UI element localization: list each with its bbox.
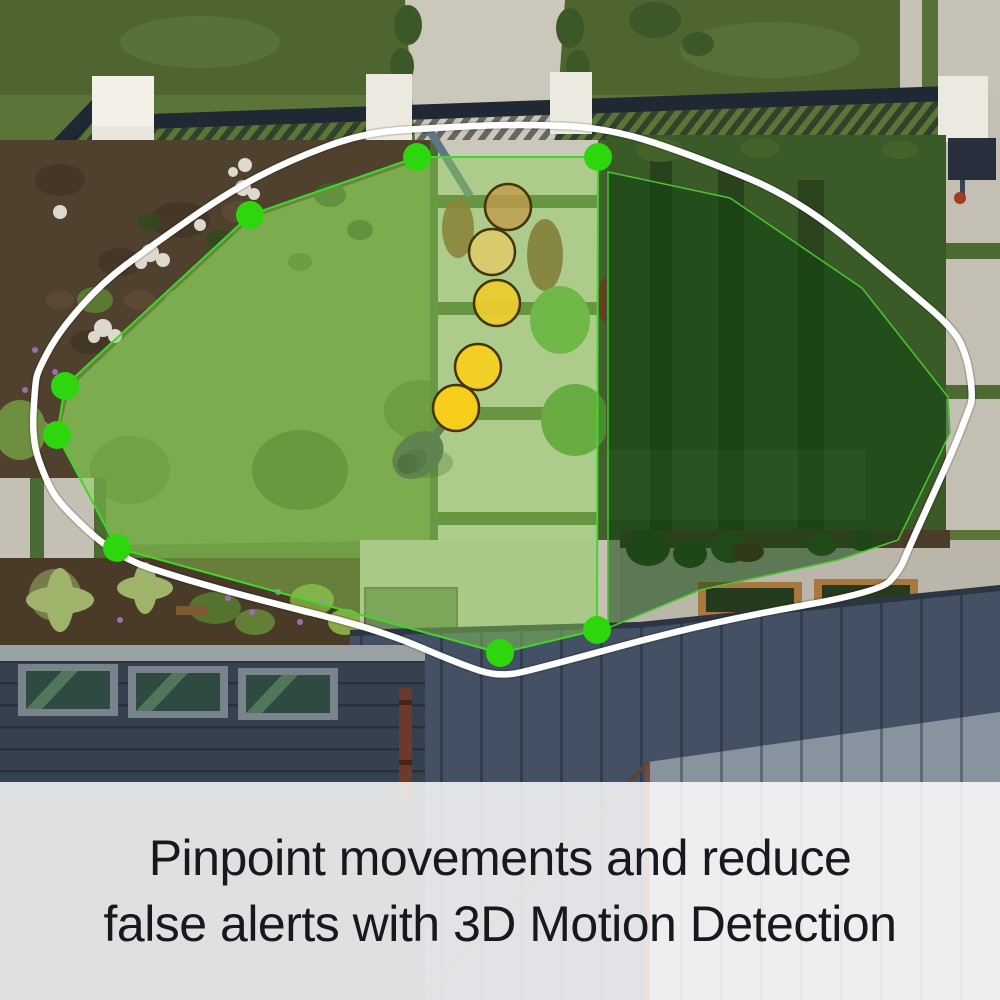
product-image: Pinpoint movements and reduce false aler… xyxy=(0,0,1000,1000)
caption-line-1: Pinpoint movements and reduce xyxy=(149,825,852,891)
motion-trail-point xyxy=(433,385,479,431)
fence-post xyxy=(938,76,988,142)
zone-vertex-handle[interactable] xyxy=(486,639,514,667)
pipe-band xyxy=(399,700,412,705)
motion-trail-point xyxy=(485,184,531,230)
deck-strip xyxy=(0,645,425,661)
skylight xyxy=(128,666,228,718)
pipe-band xyxy=(399,760,412,765)
driftwood xyxy=(176,606,208,615)
zone-vertex-handle[interactable] xyxy=(51,372,79,400)
sidewalk-grass-strip xyxy=(922,0,938,95)
zone-vertex-handle[interactable] xyxy=(403,143,431,171)
zone-vertex-handle[interactable] xyxy=(584,143,612,171)
zone-vertex-handle[interactable] xyxy=(236,201,264,229)
skylight xyxy=(18,664,118,716)
paver-joint xyxy=(30,478,44,570)
caption-line-2: false alerts with 3D Motion Detection xyxy=(104,891,897,957)
grass-highlight xyxy=(120,16,280,68)
utility-box xyxy=(948,138,996,180)
zone-vertex-handle[interactable] xyxy=(583,616,611,644)
caption-band: Pinpoint movements and reduce false aler… xyxy=(0,782,1000,1000)
sidewalk-joint xyxy=(940,243,1000,259)
skylight xyxy=(238,668,338,720)
fence-post-top xyxy=(92,76,154,126)
moss-clump xyxy=(235,609,275,635)
motion-trail-point xyxy=(455,344,501,390)
motion-trail-point xyxy=(474,280,520,326)
zone-vertex-handle[interactable] xyxy=(103,534,131,562)
zone-vertex-handle[interactable] xyxy=(43,421,71,449)
motion-trail-point xyxy=(469,229,515,275)
